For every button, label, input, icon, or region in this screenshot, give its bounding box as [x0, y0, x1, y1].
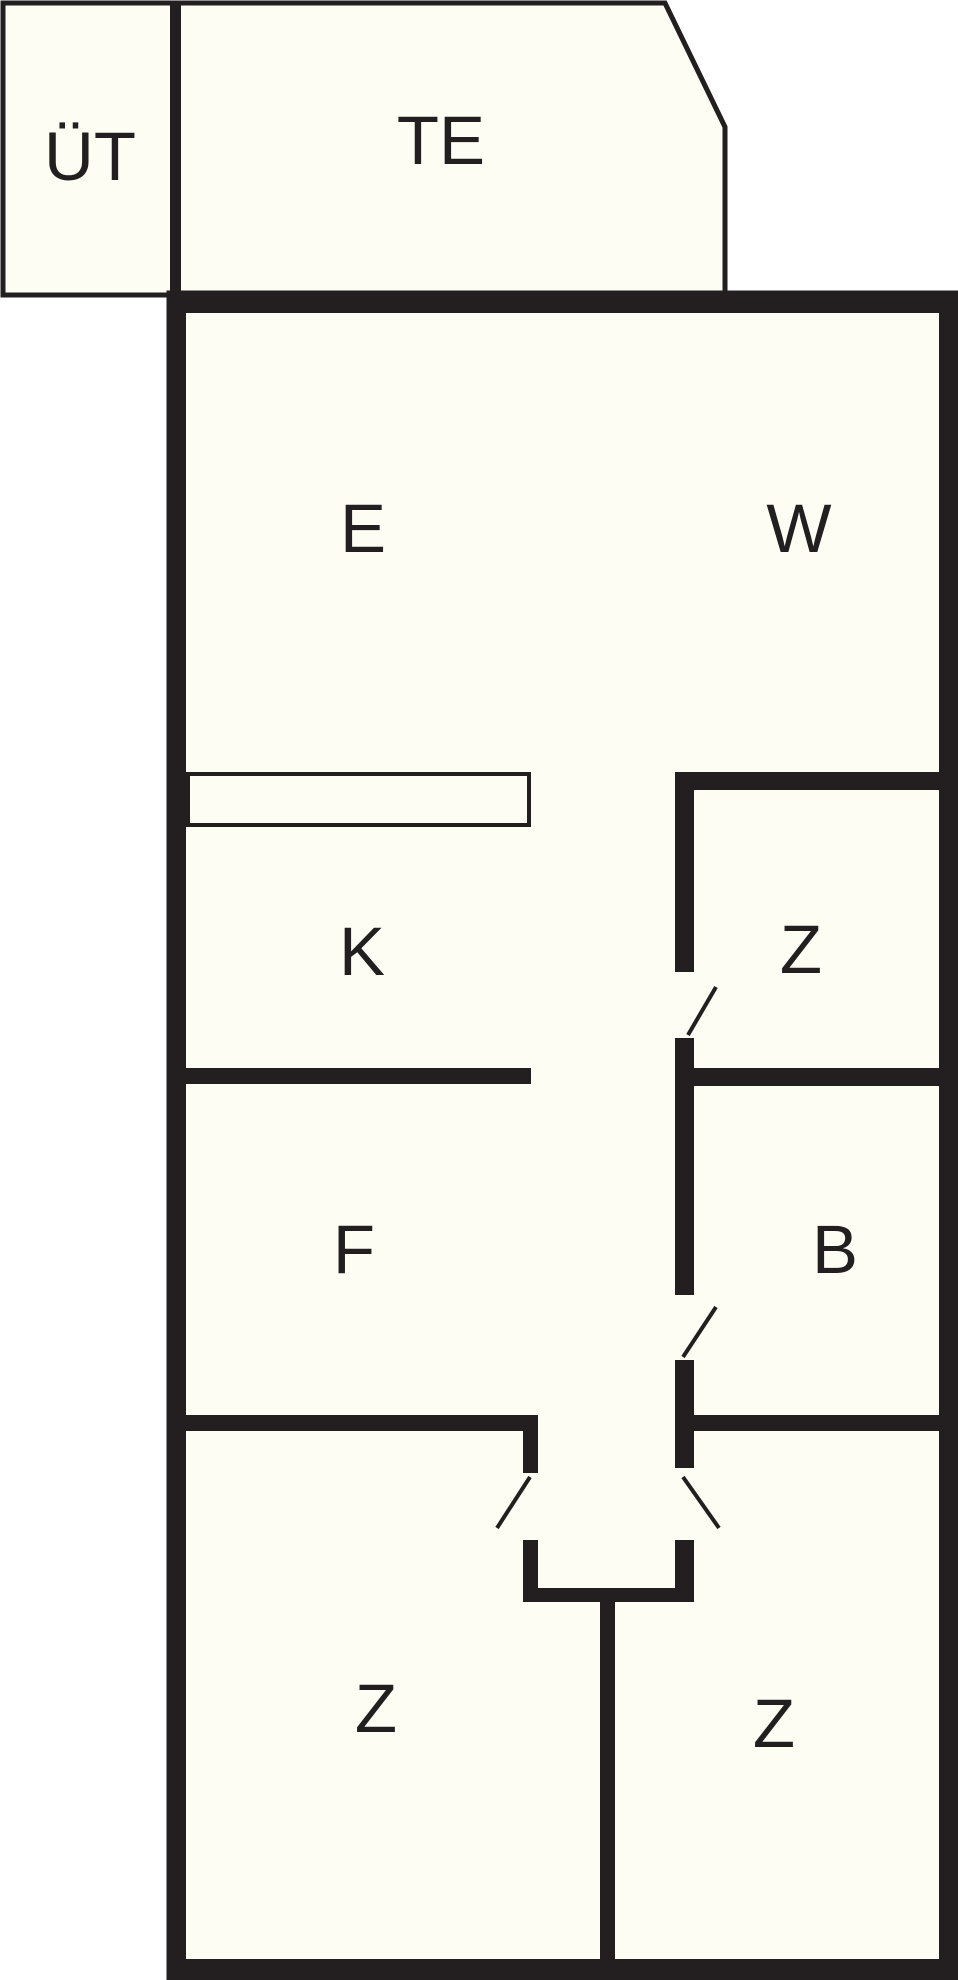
outer-wall-bottom [167, 1959, 958, 1980]
room-label-k: K [339, 913, 385, 990]
central-wall-segment-1 [675, 772, 694, 972]
room-label-z-middle-right: Z [780, 911, 822, 988]
outer-wall-top [167, 291, 958, 313]
central-wall-segment-3 [675, 1360, 694, 1468]
outer-wall-left [167, 291, 186, 1980]
room-label-te: TE [397, 102, 485, 179]
wall-uet-te-separator [170, 3, 181, 295]
annex: ÜT TE [3, 3, 725, 295]
wall-z-middle-top [675, 772, 958, 790]
room-label-z-bottom-left: Z [355, 1670, 397, 1747]
floor-plan: ÜT TE [0, 0, 958, 1980]
wall-z-b-divider [675, 1068, 958, 1086]
floor-plan-canvas: ÜT TE [0, 0, 958, 1980]
outer-wall-right [939, 291, 958, 1980]
building-interior [167, 291, 958, 1980]
room-label-e: E [340, 490, 386, 567]
wall-b-bottom [694, 1415, 958, 1431]
room-label-f: F [333, 1211, 375, 1288]
counter-partition [188, 774, 529, 825]
main-building: E W K Z F B Z Z [167, 291, 958, 1980]
entry-jamb-left-upper [523, 1431, 538, 1473]
room-label-b: B [812, 1211, 858, 1288]
room-label-z-bottom-right: Z [753, 1685, 795, 1762]
wall-z-z-divider [600, 1588, 615, 1959]
wall-f-bottom [186, 1415, 538, 1431]
room-label-w: W [766, 490, 831, 567]
room-label-uet: ÜT [44, 118, 136, 195]
wall-k-f-divider [186, 1068, 531, 1084]
